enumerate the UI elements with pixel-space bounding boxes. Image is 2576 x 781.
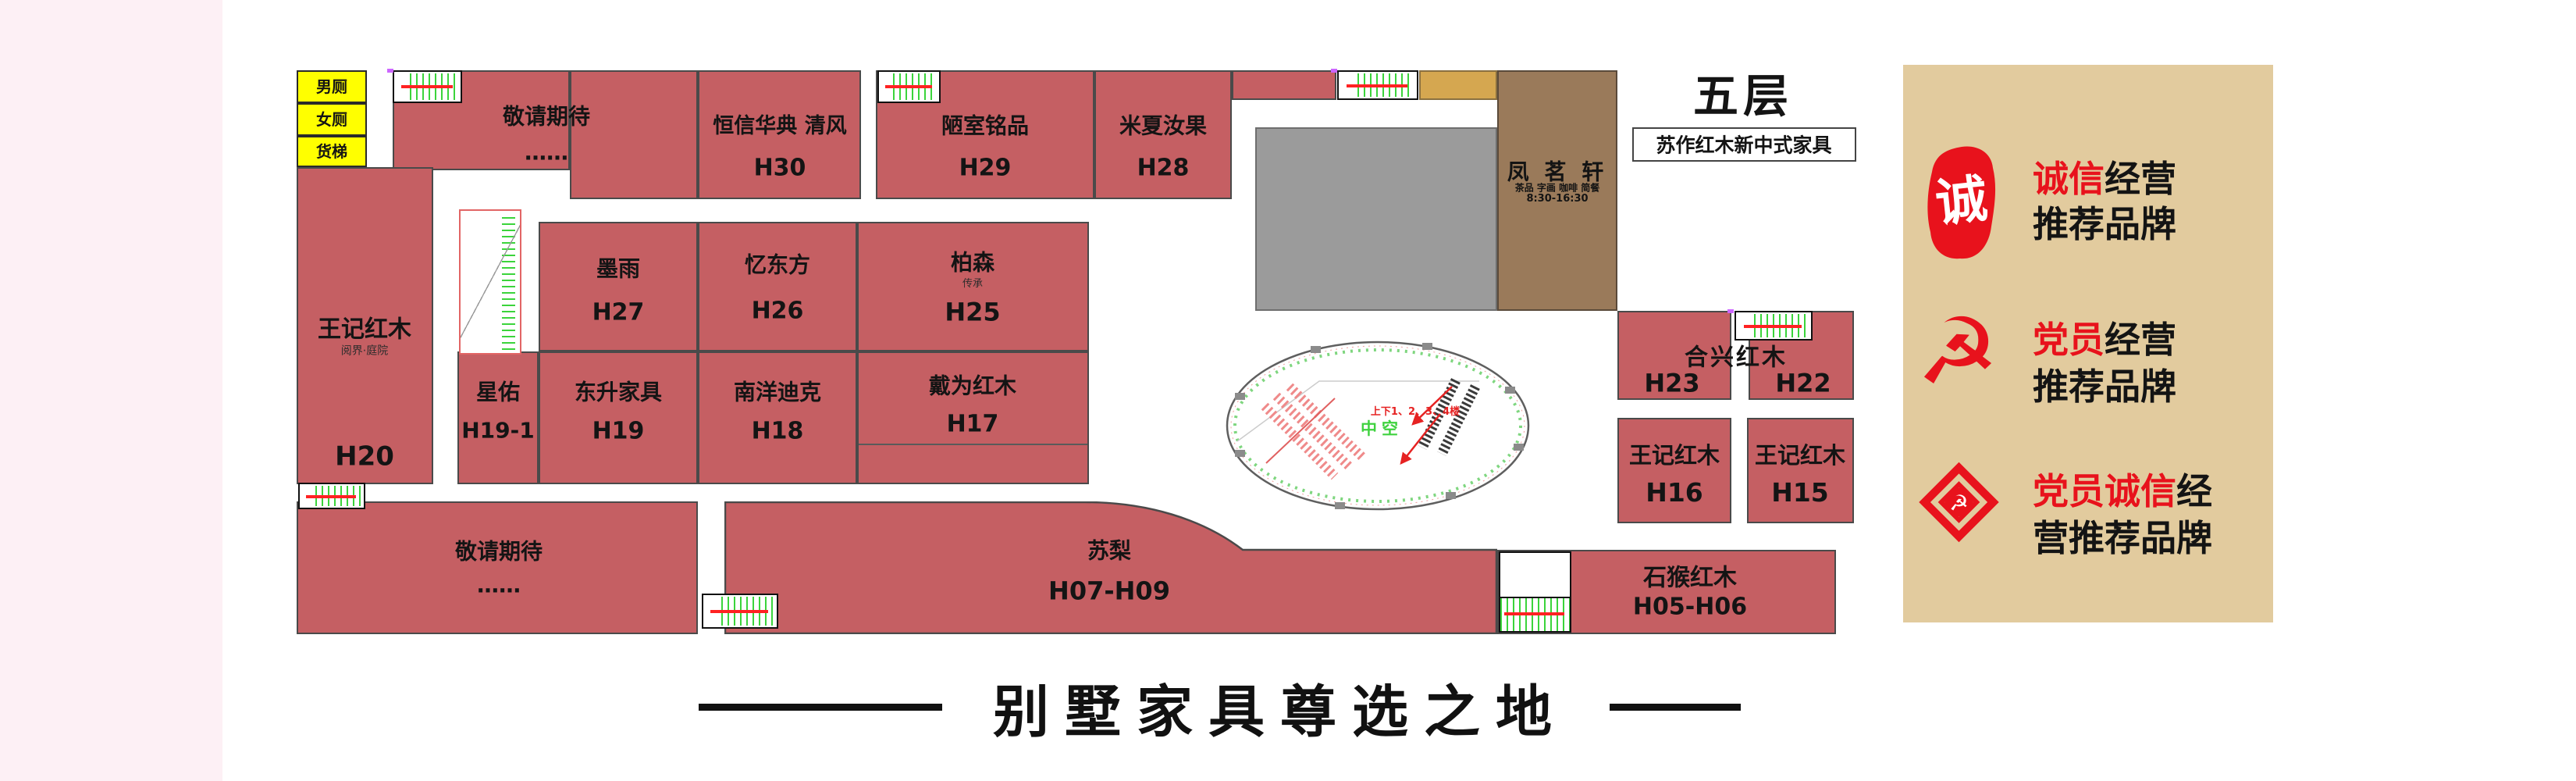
atrium-oval: 上下1、2、3、4楼 中空 [1218,332,1546,527]
stairwell-icon-top-h29 [877,70,941,103]
store-number-h27: H27 [592,300,645,326]
party-diamond-icon: ☭ [1914,455,2004,549]
store-number-shihou: H05-H06 [1633,594,1747,620]
store-number-h22: H22 [1775,369,1831,397]
svg-text:诚: 诚 [1933,169,1991,234]
store-number-h15: H15 [1771,479,1829,507]
brand-slogan-line: 营推荐品牌 [2033,518,2212,559]
store-number-h28: H28 [1137,155,1190,181]
h17-divider-line [859,444,1087,445]
gold-strip-block [1419,70,1497,100]
escalator-shaft-icon [459,209,521,355]
store-dots-await-bottom: …… [477,574,521,598]
service-core-block [1255,127,1497,311]
left-margin-strip [0,0,222,781]
store-sub-h20: 阅界·庭院 [341,345,388,357]
store-number-h29: H29 [959,155,1012,181]
atrium-direction-note: 上下1、2、3、4楼 [1371,405,1460,418]
facility-label-womens-toilet: 女厕 [316,111,347,128]
store-number-h30: H30 [754,155,806,181]
store-hours-fengmingxuan: 8:30-16:30 [1526,194,1588,205]
store-number-h25: H25 [945,298,1000,326]
store-name-h18: 南洋迪克 [734,381,821,405]
recommended-brands-panel: 诚 诚信经营 推荐品牌 ☭ 党员经营 推荐品牌 ☭ 党员诚信经 营推荐品牌 [1903,65,2273,622]
shihou-stairs-icon [1500,597,1570,631]
stairwell-icon-hexing [1735,311,1813,341]
stairwell-icon-h20-bottom [298,483,365,509]
store-number-suli: H07-H09 [1048,577,1170,604]
store-name-h20: 王记红木 [318,317,411,343]
store-block-await-bottom [297,501,698,634]
store-block-h28-strip [1232,70,1336,100]
store-name-suli: 苏梨 [1087,540,1131,564]
floor-category-label: 苏作红木新中式家具 [1656,134,1831,156]
svg-text:☭: ☭ [1949,490,1969,515]
brand-slogan-line: 党员诚信经 [2033,471,2212,512]
store-block-h27 [539,222,698,351]
store-number-h18: H18 [752,419,804,444]
tagline-rule-right [1610,704,1741,711]
store-number-h19: H19 [592,419,645,444]
brand-slogan-line: 推荐品牌 [2033,204,2176,245]
door-mark-icon-2 [1331,69,1337,73]
store-dots-await-top: …… [525,141,568,166]
store-number-h19-1: H19-1 [461,419,535,444]
store-name-h15: 王记红木 [1755,444,1845,469]
atrium-label: 中空 [1361,419,1403,438]
store-number-h26: H26 [752,298,804,324]
store-services-fengmingxuan: 茶品 字画 咖啡 简餐 [1515,183,1600,193]
party-emblem-icon: ☭ [1911,303,2005,401]
store-block-await-top-extension [570,70,698,199]
facility-label-freight-elevator: 货梯 [316,143,347,160]
store-number-h17: H17 [947,412,999,437]
store-name-shihou: 石猴红木 [1643,565,1737,591]
tagline-rule-left [699,704,942,711]
store-name-hexing: 合兴红木 [1685,345,1788,371]
store-name-h26: 忆东方 [745,254,810,278]
stairwell-icon-top-right [1337,70,1418,100]
store-name-h19: 东升家具 [575,381,662,405]
store-name-h25: 柏森 [951,251,994,276]
floor-title: 五层 [1693,72,1793,122]
store-number-h16: H16 [1646,479,1703,507]
store-sub-h25: 传承 [962,279,983,290]
brand-slogan-line: 党员经营 [2033,319,2176,361]
brand-slogan-line: 推荐品牌 [2033,366,2176,408]
store-name-h16: 王记红木 [1629,444,1720,469]
store-name-await-top: 敬请期待 [503,105,590,130]
store-name-fengmingxuan: 凤 茗 轩 [1507,161,1608,185]
store-block-h26 [698,222,857,351]
door-mark-icon-3 [1727,309,1734,313]
store-name-await-bottom: 敬请期待 [455,540,543,565]
store-name-h17: 戴为红木 [929,375,1016,399]
store-name-h27: 墨雨 [596,258,640,282]
facility-label-mens-toilet: 男厕 [316,78,347,95]
store-name-h19-1: 星佑 [476,381,520,405]
stairwell-icon-bottom-middle [702,594,778,629]
floor-plan-canvas: 男厕 女厕 货梯 [0,0,2576,781]
seal-stamp-icon: 诚 [1922,144,2001,262]
door-mark-icon-1 [387,69,393,73]
brand-slogan-line: 诚信经营 [2033,159,2176,200]
store-name-h29: 陋室铭品 [941,115,1029,139]
store-number-h20: H20 [335,442,394,471]
store-number-h23: H23 [1644,369,1699,397]
store-name-h28: 米夏汝果 [1119,115,1207,139]
bottom-tagline: 别墅家具尊选之地 [993,666,1567,748]
store-name-h30: 恒信华典 清风 [713,115,846,138]
stairwell-icon-topleft [393,70,462,103]
